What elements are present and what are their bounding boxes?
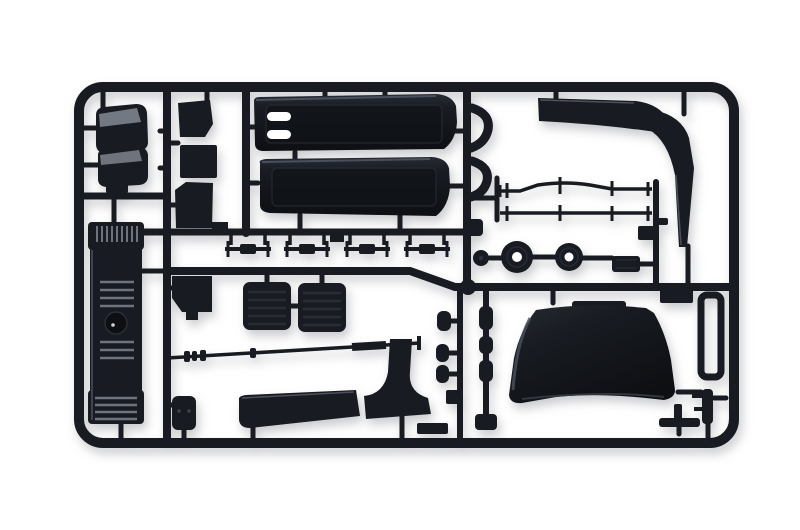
front-grille-panel: Front grille panel	[88, 222, 144, 424]
wheel-disc-small: Wheel disc (small)	[555, 243, 583, 271]
runner-junction	[460, 279, 476, 295]
knob-fitting: Knob fitting	[467, 219, 483, 236]
frame-end-block: Frame end block	[417, 423, 448, 434]
rod-clip	[658, 218, 668, 225]
small-box-part: Small box part	[178, 100, 213, 137]
gate-block	[212, 222, 228, 233]
runner-block	[330, 234, 344, 242]
angled-bracket-part: Angled bracket part	[175, 182, 213, 228]
sprue-photo: Sprue frame Runner rails Runner loop	[0, 0, 800, 530]
seat-cushion-right: Seat cushion (right)	[298, 283, 346, 332]
side-fairing-panel-lower: Side fairing panel (plain)	[260, 157, 450, 216]
wheel-disc-large: Wheel disc (large)	[501, 241, 533, 273]
right-runner-block	[660, 289, 693, 303]
grille-top-ribs	[97, 226, 137, 242]
side-fairing-panel-upper: Side fairing panel with slots	[254, 94, 457, 151]
seat-cushion-left: Seat cushion (left)	[243, 282, 291, 330]
small-tank: Small tank	[172, 396, 196, 430]
roof-air-dam: Roof air dam	[509, 301, 675, 403]
panel-slot-2	[267, 130, 291, 139]
panel-slot-1	[267, 112, 291, 121]
medium-box-part: Medium box part	[180, 145, 217, 178]
axle-mount-block: Axle mount block	[612, 256, 640, 272]
grille-emblem	[105, 312, 127, 334]
rod-end-block	[638, 226, 654, 240]
grille-emblem-dot	[111, 323, 115, 327]
small-disc-fitting: Small disc fitting	[473, 250, 489, 266]
fender-shell-upper: Fender shell (upper)	[96, 104, 148, 153]
